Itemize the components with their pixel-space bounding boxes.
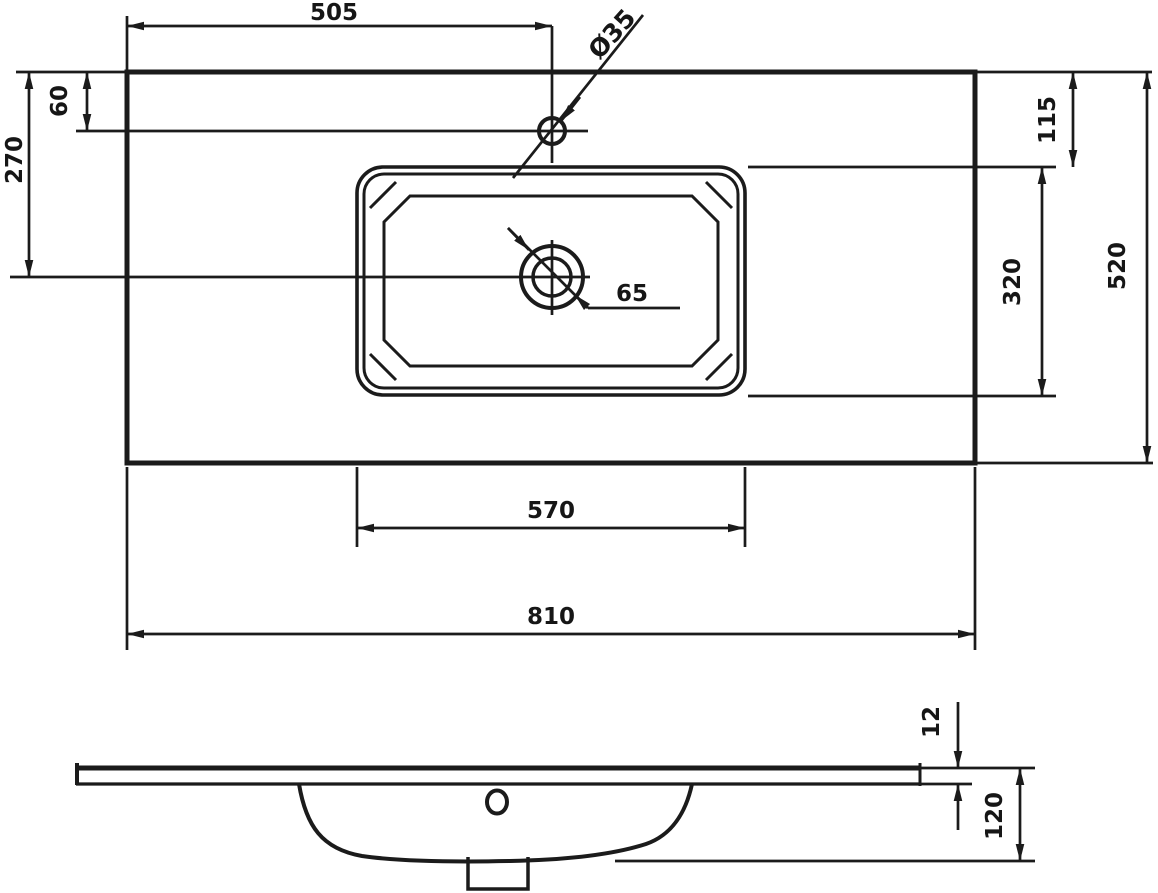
dim-label-drain-diameter: 65 bbox=[616, 281, 648, 307]
basin-bowl-profile bbox=[299, 784, 692, 861]
dim-label-countertop-width: 810 bbox=[527, 604, 575, 630]
dim-label-basin-depth: 320 bbox=[1000, 258, 1026, 306]
dim-label-countertop-thickness: 12 bbox=[919, 706, 945, 738]
technical-drawing-page: 505 Ø35 60 270 115 320 520 65 570 810 12… bbox=[0, 0, 1158, 893]
overflow-hole bbox=[487, 791, 507, 814]
extension-lines-top-view bbox=[10, 16, 1153, 650]
dim-label-faucet-from-left: 505 bbox=[310, 0, 358, 26]
washbasin-technical-drawing: 505 Ø35 60 270 115 320 520 65 570 810 12… bbox=[0, 0, 1158, 893]
dim-label-countertop-depth: 520 bbox=[1105, 242, 1131, 290]
dim-label-drain-from-back: 270 bbox=[2, 136, 28, 184]
extension-lines-front-view bbox=[615, 768, 1035, 861]
dim-label-basin-width: 570 bbox=[527, 498, 575, 524]
dimension-lines-top-view bbox=[29, 26, 1147, 634]
dim-label-faucet-from-back: 60 bbox=[47, 85, 73, 117]
dim-label-basin-height: 120 bbox=[982, 792, 1008, 840]
countertop-section bbox=[76, 763, 920, 786]
dim-label-basin-from-back: 115 bbox=[1035, 96, 1061, 144]
dim-label-faucet-hole-diameter: Ø35 bbox=[582, 3, 641, 64]
